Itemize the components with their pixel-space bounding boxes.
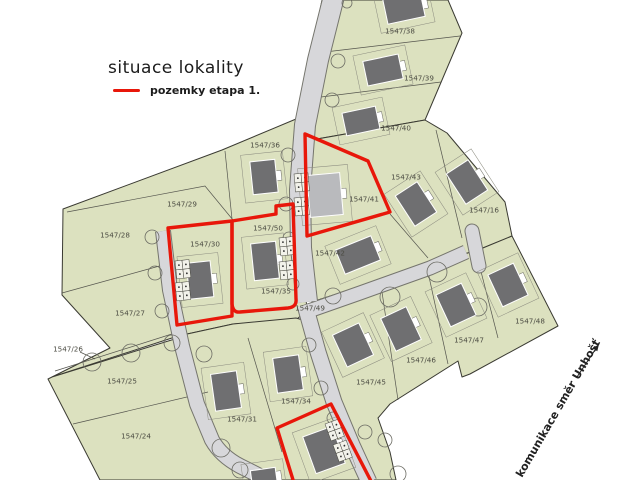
parcel-label: 1547/43 <box>391 173 421 182</box>
parcel-label: 1547/42 <box>315 249 345 258</box>
garage-group <box>175 282 191 301</box>
legend-red-line-swatch <box>113 89 140 93</box>
parcel-label: 1547/49 <box>295 304 325 313</box>
house <box>251 241 280 280</box>
parcel-label: 1547/34 <box>281 397 311 406</box>
parcel-label: 1547/25 <box>107 377 137 386</box>
parcel-label: 1547/45 <box>356 378 386 387</box>
parcel-label: 1547/40 <box>381 124 411 133</box>
parcel-label: 1547/29 <box>167 200 197 209</box>
parcel-label: 1547/31 <box>227 415 257 424</box>
road-turnaround <box>472 231 479 266</box>
parcel-label: 1547/39 <box>404 74 434 83</box>
parcel-label: 1547/30 <box>190 240 220 249</box>
site-plan-page: 1547/381547/391547/401547/361547/431547/… <box>0 0 640 480</box>
road-direction-group: komunikace směr Unhošť <box>513 337 603 480</box>
garage-group <box>175 260 191 279</box>
house <box>273 355 304 393</box>
parcel-label: 1547/26 <box>53 345 83 354</box>
parcel-label: 1547/47 <box>454 336 484 345</box>
parcel-label: 1547/16 <box>469 206 499 215</box>
legend: pozemky etapa 1. <box>113 84 260 97</box>
parcel-label: 1547/35 <box>261 287 291 296</box>
parcel-label: 1547/27 <box>115 309 145 318</box>
parcel-label: 1547/38 <box>385 27 415 36</box>
parcel-label: 1547/24 <box>121 432 151 441</box>
garage-group <box>279 261 295 280</box>
house <box>250 159 278 194</box>
page-title: situace lokality <box>108 58 244 78</box>
parcel-label: 1547/46 <box>406 356 436 365</box>
house <box>211 371 242 411</box>
parcel-label: 1547/36 <box>250 141 280 150</box>
site-plan-drawing: 1547/381547/391547/401547/361547/431547/… <box>0 0 640 480</box>
parcel-label: 1547/28 <box>100 231 130 240</box>
parcel-label: 1547/50 <box>253 224 283 233</box>
legend-label: pozemky etapa 1. <box>150 84 260 97</box>
parcel-label: 1547/48 <box>515 317 545 326</box>
parcel-label: 1547/41 <box>349 195 379 204</box>
house <box>307 173 344 218</box>
